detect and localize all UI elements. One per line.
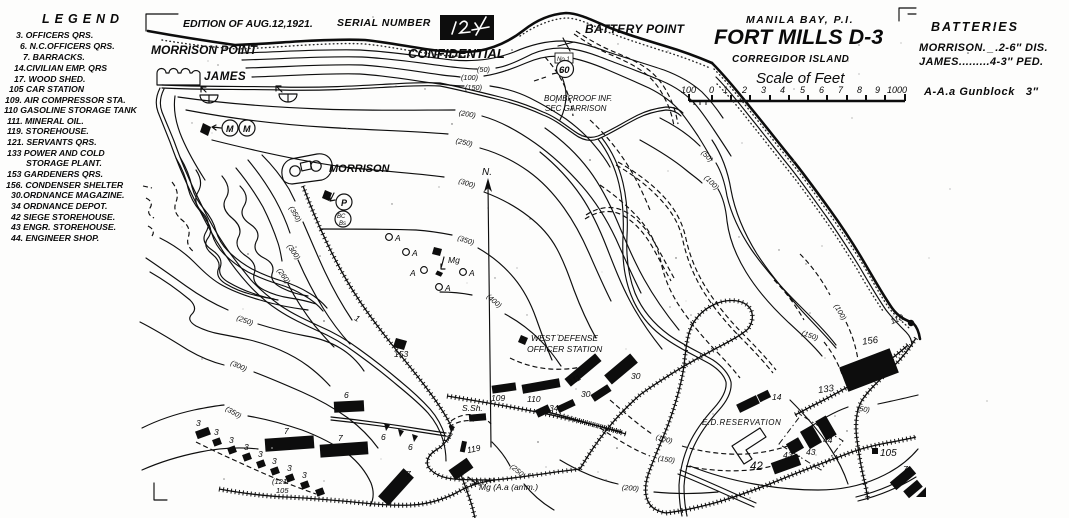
svg-text:SERIAL NUMBER: SERIAL NUMBER: [337, 17, 431, 29]
svg-text:A-A.a Gunblock 3″: A-A.a Gunblock 3″: [923, 86, 1039, 98]
svg-text:3: 3: [272, 456, 277, 466]
svg-text:17: 17: [442, 433, 452, 443]
svg-text:(200): (200): [622, 483, 640, 493]
svg-text:110 GASOLINE STORAGE TANK: 110 GASOLINE STORAGE TANK: [4, 105, 137, 115]
svg-text:156: 156: [862, 335, 880, 348]
svg-text:109: 109: [491, 393, 505, 403]
svg-text:109. AIR COMPRESSOR STA.: 109. AIR COMPRESSOR STA.: [5, 95, 126, 105]
svg-text:3: 3: [258, 449, 263, 459]
svg-text:JAMES: JAMES: [204, 71, 246, 83]
svg-text:119. STOREHOUSE.: 119. STOREHOUSE.: [7, 126, 89, 136]
svg-text:121. SERVANTS QRS.: 121. SERVANTS QRS.: [7, 137, 97, 147]
svg-text:A: A: [444, 283, 451, 293]
svg-text:EDITION OF AUG.12,1921.: EDITION OF AUG.12,1921.: [183, 18, 313, 30]
svg-text:A: A: [468, 268, 475, 278]
svg-text:7: 7: [284, 426, 289, 436]
svg-text:7: 7: [338, 433, 343, 443]
svg-text:42 SIEGE STOREHOUSE.: 42 SIEGE STOREHOUSE.: [10, 212, 115, 222]
svg-text:133: 133: [817, 383, 835, 396]
svg-text:2: 2: [741, 85, 747, 95]
svg-text:34 ORDNANCE DEPOT.: 34 ORDNANCE DEPOT.: [11, 201, 107, 211]
svg-text:Mg: Mg: [448, 255, 460, 265]
svg-text:6: 6: [381, 432, 386, 442]
svg-text:3: 3: [196, 418, 201, 428]
svg-text:P: P: [341, 198, 348, 208]
svg-text:CORREGIDOR ISLAND: CORREGIDOR ISLAND: [732, 54, 849, 65]
svg-text:LEGEND: LEGEND: [42, 12, 124, 26]
svg-text:8: 8: [857, 85, 862, 95]
svg-text:(100): (100): [461, 73, 478, 82]
svg-text:0: 0: [709, 85, 714, 95]
svg-text:S.Sh.: S.Sh.: [462, 403, 483, 413]
svg-text:4: 4: [780, 85, 785, 95]
svg-text:A: A: [409, 268, 416, 278]
svg-text:7: 7: [406, 469, 411, 479]
svg-text:6: 6: [344, 390, 349, 400]
svg-text:MORRISON: MORRISON: [329, 163, 391, 175]
svg-text:3: 3: [214, 427, 219, 437]
svg-text:A: A: [394, 233, 401, 243]
svg-text:17. WOOD SHED.: 17. WOOD SHED.: [14, 74, 85, 84]
svg-text:JAMES.........4-3″ PED.: JAMES.........4-3″ PED.: [919, 56, 1044, 68]
svg-text:43 ENGR. STOREHOUSE.: 43 ENGR. STOREHOUSE.: [10, 222, 116, 232]
svg-text:3: 3: [229, 435, 234, 445]
svg-text:9: 9: [875, 85, 880, 95]
svg-text:3: 3: [302, 470, 307, 480]
svg-text:1000: 1000: [887, 85, 907, 95]
svg-text:6: 6: [819, 85, 824, 95]
svg-text:44. ENGINEER SHOP.: 44. ENGINEER SHOP.: [10, 233, 99, 243]
svg-text:BC: BC: [337, 214, 346, 220]
svg-text:WEST DEFENSE: WEST DEFENSE: [531, 333, 598, 343]
svg-text:BATTERIES: BATTERIES: [931, 20, 1019, 34]
svg-text:M: M: [243, 124, 251, 134]
svg-text:153: 153: [394, 349, 408, 359]
svg-text:105: 105: [276, 486, 289, 495]
svg-text:3: 3: [244, 442, 249, 452]
svg-text:30: 30: [631, 371, 641, 381]
svg-text:FORT MILLS D-3: FORT MILLS D-3: [714, 25, 883, 49]
svg-text:STORAGE PLANT.: STORAGE PLANT.: [26, 158, 102, 168]
svg-text:N.: N.: [482, 167, 492, 178]
svg-text:43: 43: [806, 447, 816, 457]
svg-text:BOMBPROOF INF.: BOMBPROOF INF.: [544, 94, 612, 103]
svg-text:Mg (A.a (amm.): Mg (A.a (amm.): [479, 482, 538, 492]
svg-text:44: 44: [823, 435, 833, 445]
svg-text:MORRISON. _ .2-6″ DIS.: MORRISON. _ .2-6″ DIS.: [919, 42, 1048, 54]
svg-text:(50): (50): [477, 65, 490, 74]
svg-text:A: A: [411, 248, 418, 258]
svg-text:111. MINERAL OIL.: 111. MINERAL OIL.: [7, 116, 84, 126]
svg-text:Bs: Bs: [339, 221, 346, 227]
svg-text:OFFICER STATION: OFFICER STATION: [527, 344, 603, 354]
svg-text:110: 110: [527, 394, 541, 404]
svg-text:60: 60: [559, 65, 570, 76]
svg-text:42: 42: [750, 461, 763, 473]
svg-text:14: 14: [772, 392, 782, 402]
svg-text:153 GARDENERS QRS.: 153 GARDENERS QRS.: [7, 169, 103, 179]
svg-text:105 CAR STATION: 105 CAR STATION: [9, 84, 85, 94]
svg-text:E.D.RESERVATION: E.D.RESERVATION: [702, 418, 781, 427]
svg-text:14.CIVILIAN EMP. QRS: 14.CIVILIAN EMP. QRS: [14, 63, 107, 73]
svg-text:(121: (121: [272, 477, 287, 486]
svg-text:M: M: [226, 124, 234, 134]
svg-text:133 POWER AND COLD: 133 POWER AND COLD: [7, 148, 105, 158]
svg-text:3: 3: [761, 85, 766, 95]
svg-text:SEC GARRISON: SEC GARRISON: [545, 104, 607, 113]
svg-text:30: 30: [581, 389, 591, 399]
svg-text:7: 7: [903, 464, 908, 474]
svg-text:7. BARRACKS.: 7. BARRACKS.: [23, 52, 85, 62]
svg-text:156. CONDENSER SHELTER: 156. CONDENSER SHELTER: [6, 180, 124, 190]
svg-text:105: 105: [880, 448, 897, 459]
svg-text:3. OFFICERS QRS.: 3. OFFICERS QRS.: [16, 30, 93, 40]
svg-text:30.ORDNANCE MAGAZINE.: 30.ORDNANCE MAGAZINE.: [11, 190, 124, 200]
svg-text:3: 3: [287, 463, 292, 473]
svg-text:6. N.C.OFFICERS QRS.: 6. N.C.OFFICERS QRS.: [20, 41, 115, 51]
svg-text:6: 6: [408, 442, 413, 452]
